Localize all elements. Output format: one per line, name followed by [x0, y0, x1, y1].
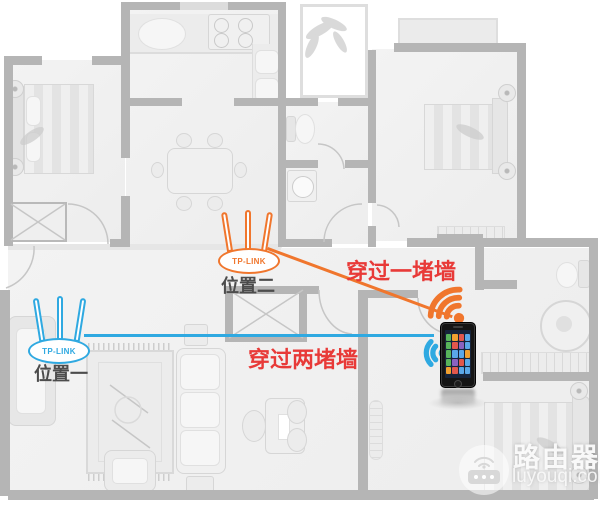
position-1-label: 位置一	[34, 360, 88, 386]
antenna-icon	[57, 296, 63, 342]
app-grid	[445, 333, 471, 375]
one-wall-label: 穿过一堵墙	[346, 254, 456, 286]
home-button-icon	[454, 380, 462, 388]
floorplan-decor	[0, 0, 600, 510]
position-2-label: 位置二	[221, 272, 275, 298]
wifi-placement-diagram: TP-LINK 位置二 TP-LINK 位置一 穿过一堵墙 穿过两堵墙	[0, 0, 600, 510]
phone-reflection	[441, 389, 475, 406]
antenna-icon	[245, 210, 251, 252]
watermark-antenna-icon	[470, 454, 498, 470]
signal-line-two-walls	[84, 334, 434, 337]
watermark-router-icon	[468, 470, 500, 484]
two-walls-label: 穿过两堵墙	[248, 342, 358, 374]
earpiece-icon	[453, 326, 463, 328]
watermark-domain: luyouqi.com	[512, 466, 600, 488]
router-body: TP-LINK	[218, 248, 280, 274]
